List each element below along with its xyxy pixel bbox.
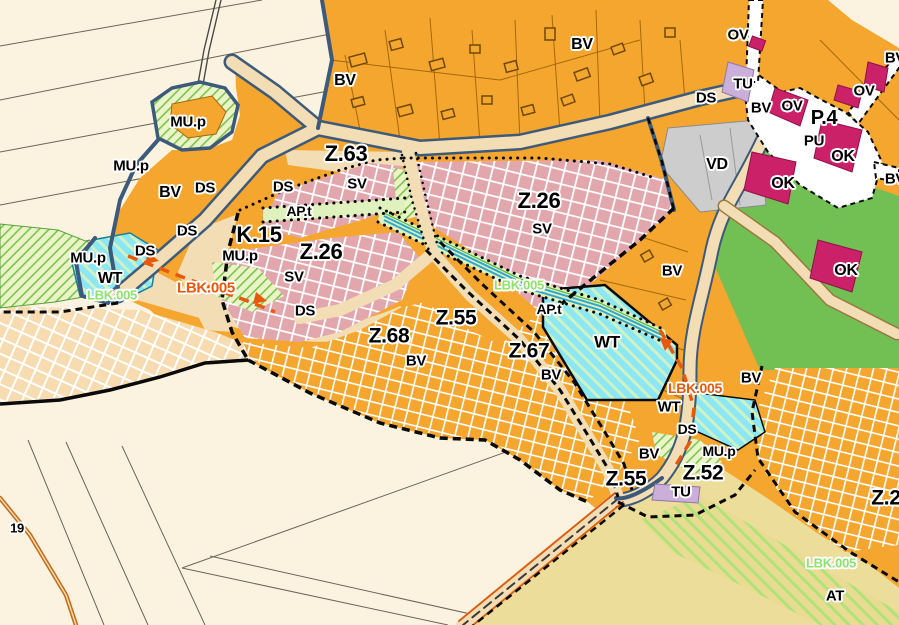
map-canvas[interactable]: MU.pMU.pBVDSDSDSMU.pDSWTLBK.005MU.pK.15Z… (0, 0, 899, 625)
zoning-map-graphic (0, 0, 899, 625)
